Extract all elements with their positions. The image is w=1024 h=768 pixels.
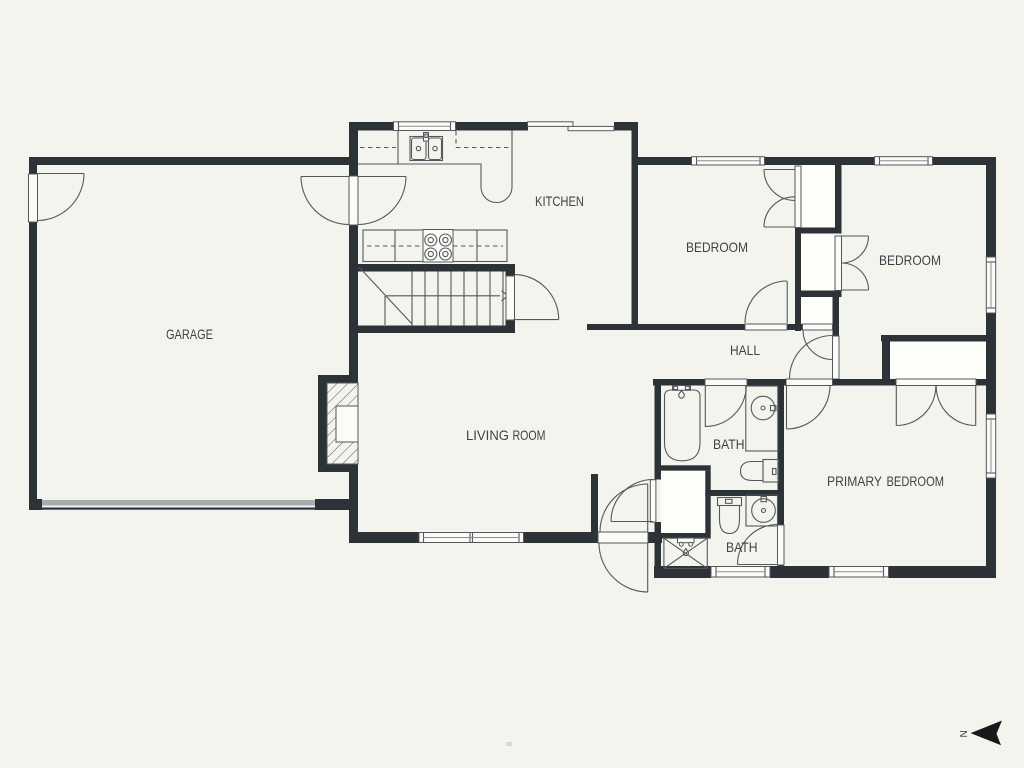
svg-text:PRIMARY: PRIMARY xyxy=(827,473,883,489)
svg-text:BEDROOM: BEDROOM xyxy=(686,239,748,255)
svg-text:GARAGE: GARAGE xyxy=(166,326,213,342)
svg-text:BEDROOM: BEDROOM xyxy=(887,473,945,489)
svg-text:HALL: HALL xyxy=(730,342,760,358)
svg-text:KITCHEN: KITCHEN xyxy=(535,193,584,209)
svg-text:LIVING: LIVING xyxy=(466,427,509,443)
svg-text:N: N xyxy=(959,730,970,737)
svg-text:ROOM: ROOM xyxy=(513,427,546,443)
svg-text:BEDROOM: BEDROOM xyxy=(879,252,941,268)
svg-text:BATH: BATH xyxy=(713,436,745,452)
svg-text:BATH: BATH xyxy=(726,539,758,555)
